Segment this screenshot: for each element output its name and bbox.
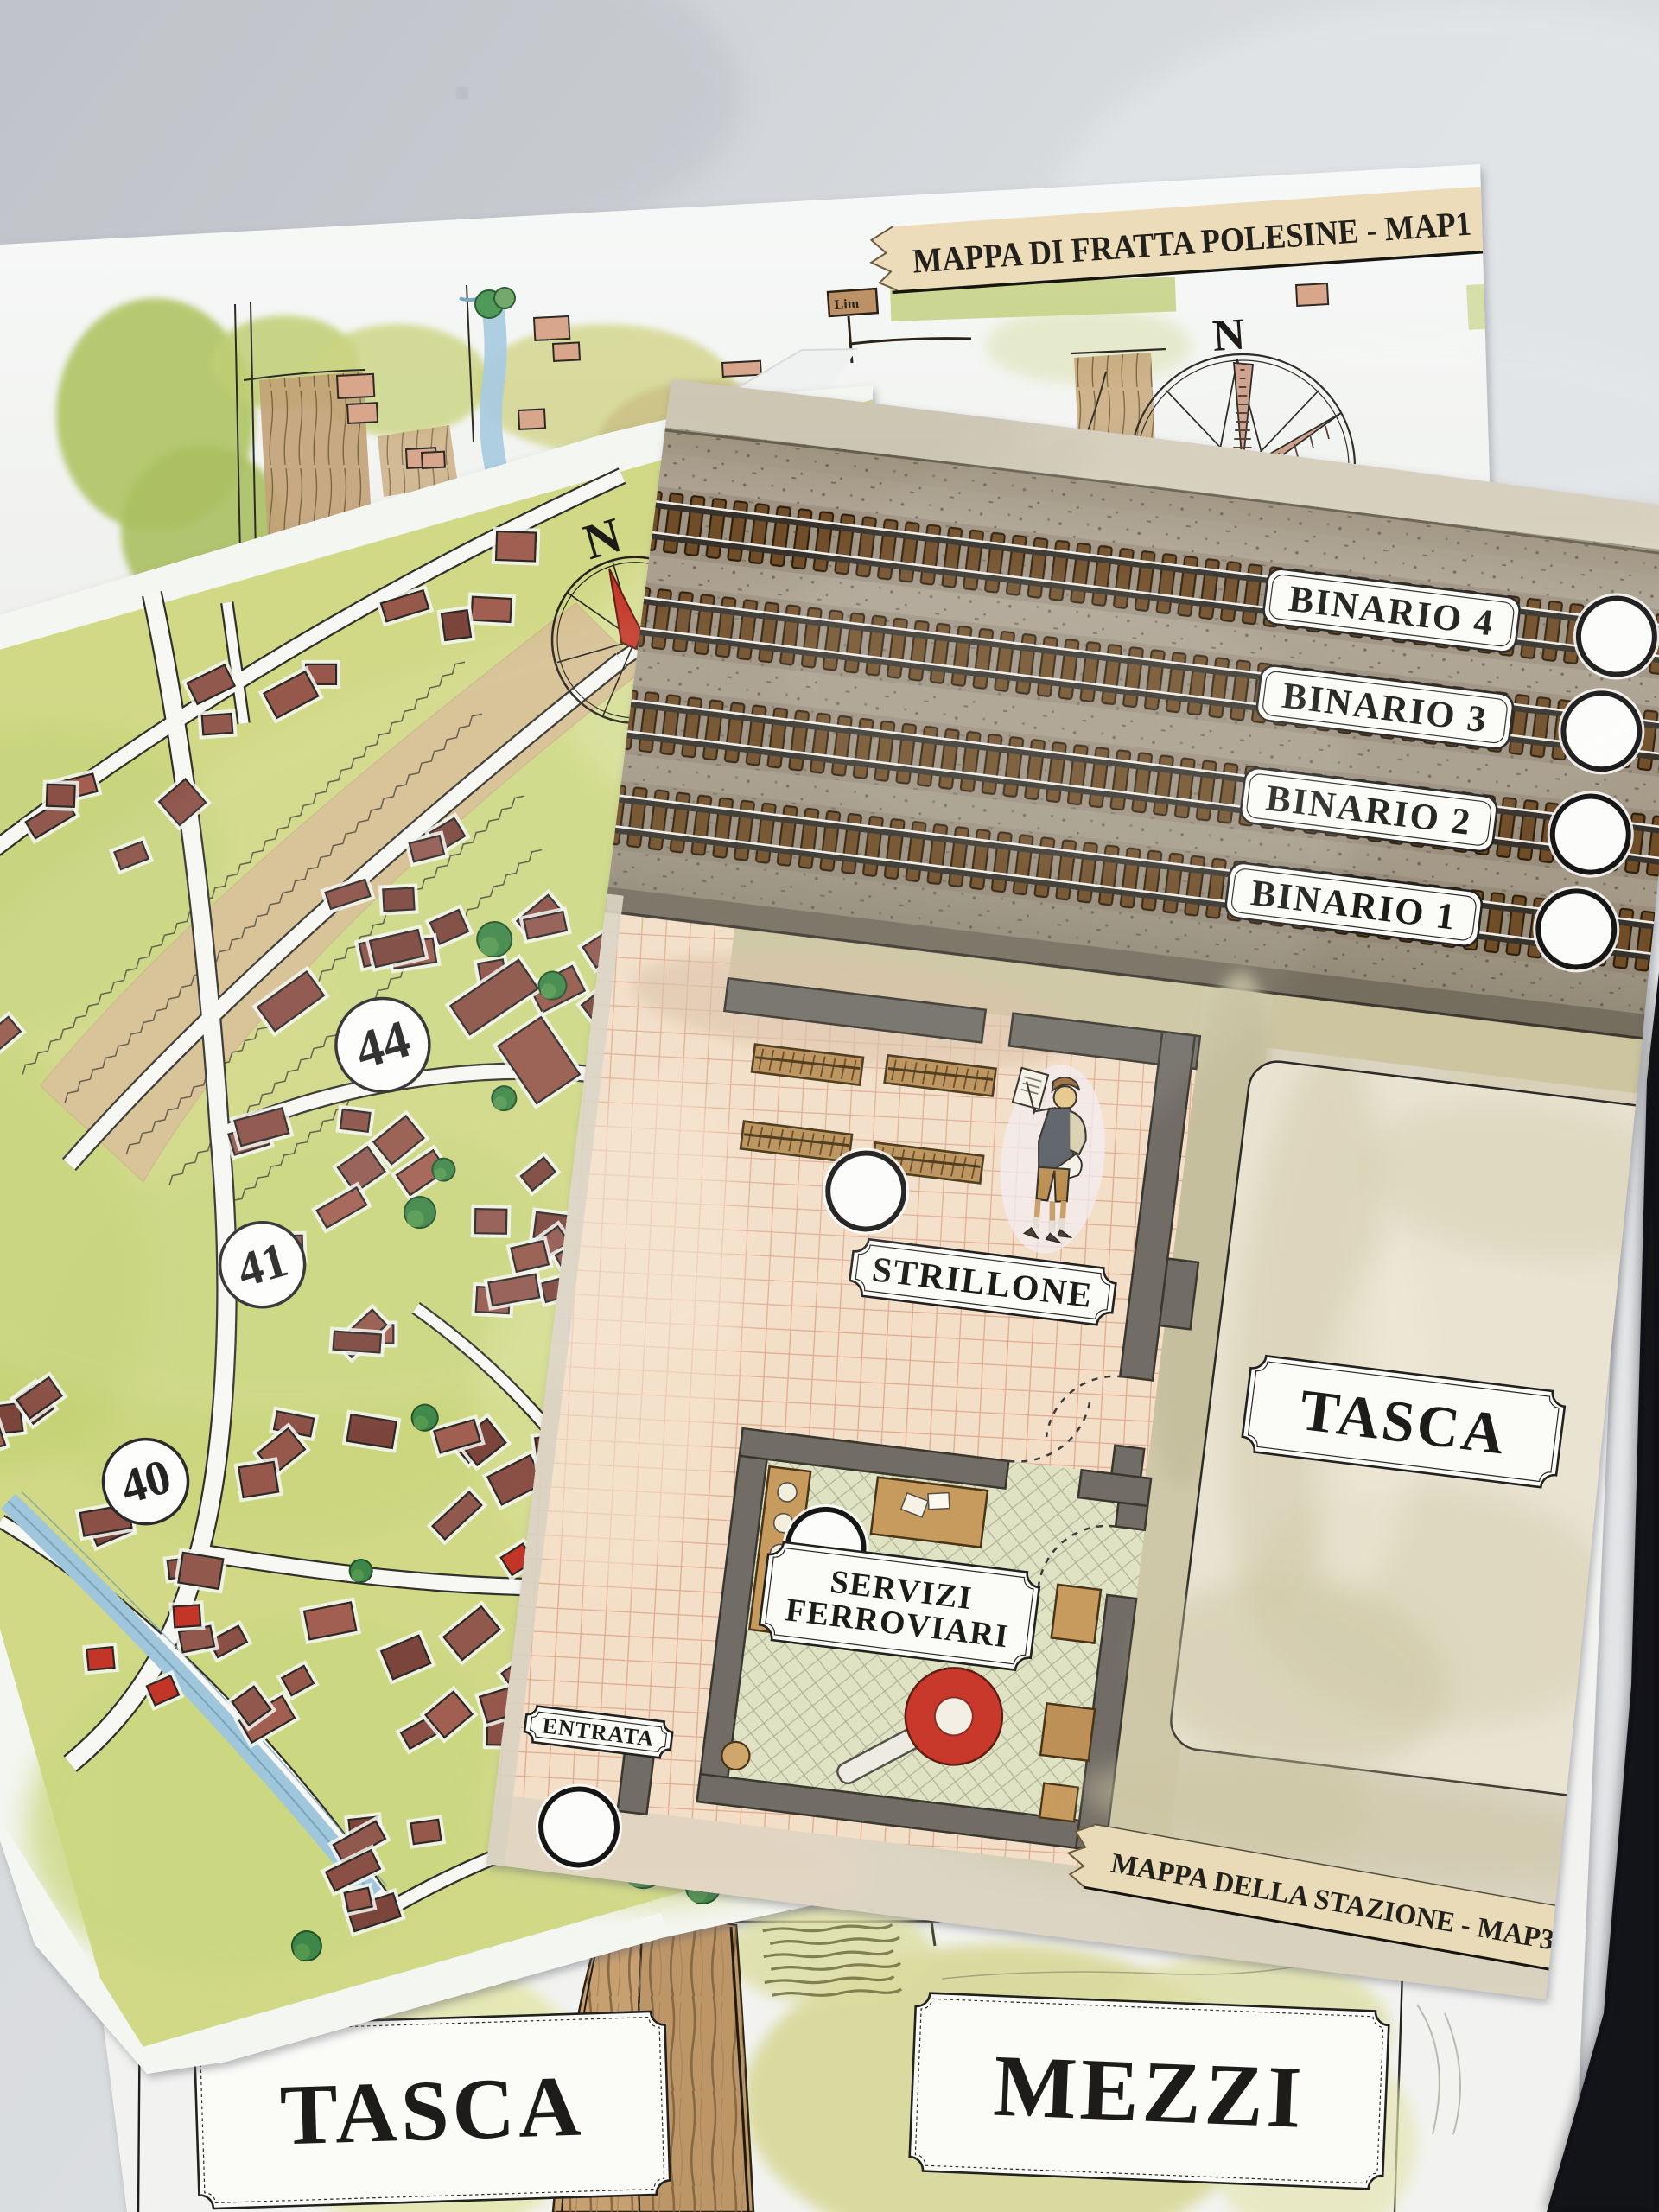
svg-text:MEZZI: MEZZI xyxy=(992,2037,1306,2147)
svg-text:TASCA: TASCA xyxy=(279,2058,586,2164)
svg-text:Lim: Lim xyxy=(834,296,860,313)
